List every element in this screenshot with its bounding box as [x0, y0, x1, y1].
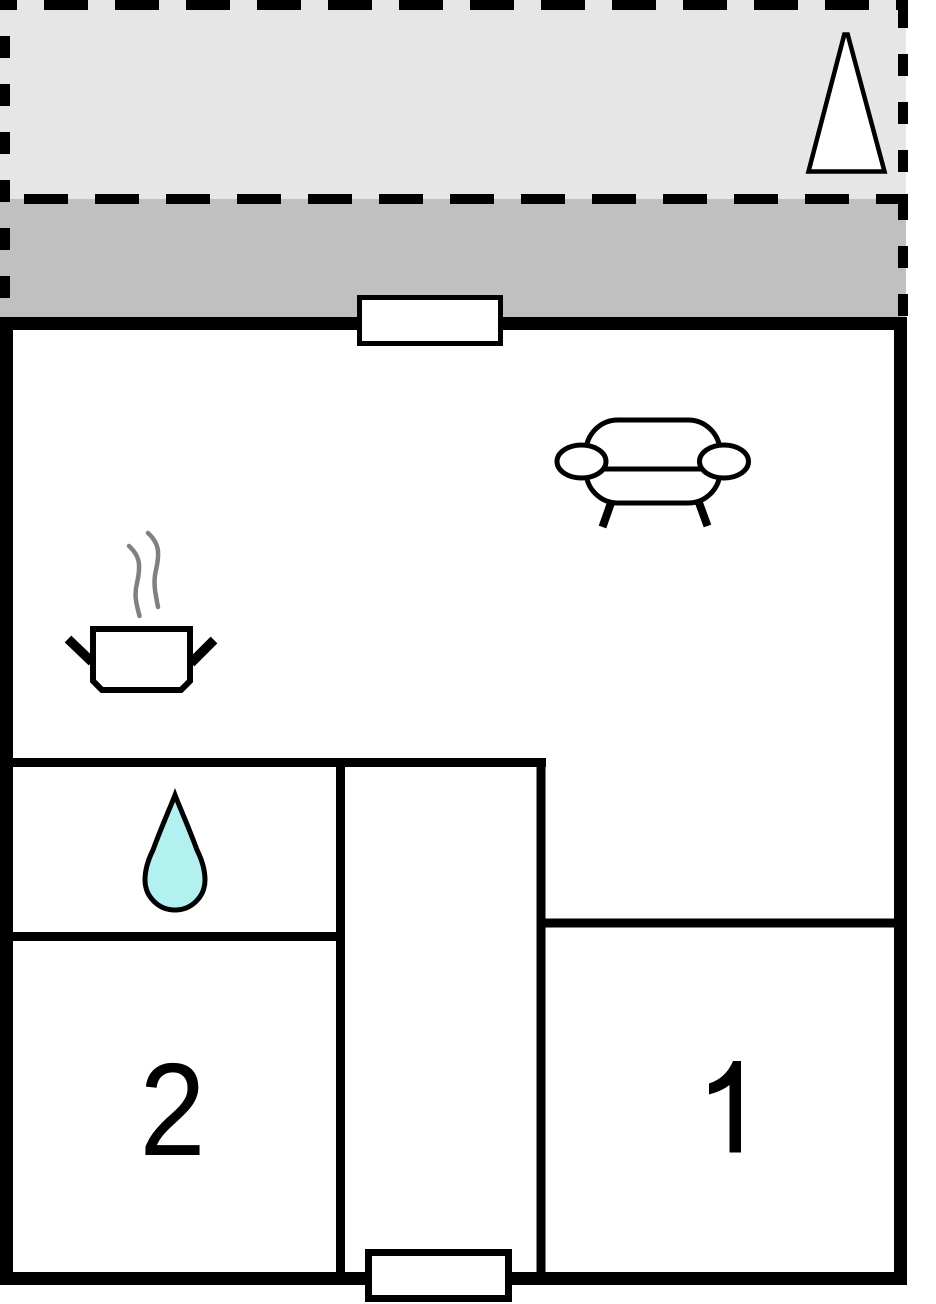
- svg-text:2: 2: [139, 1035, 205, 1183]
